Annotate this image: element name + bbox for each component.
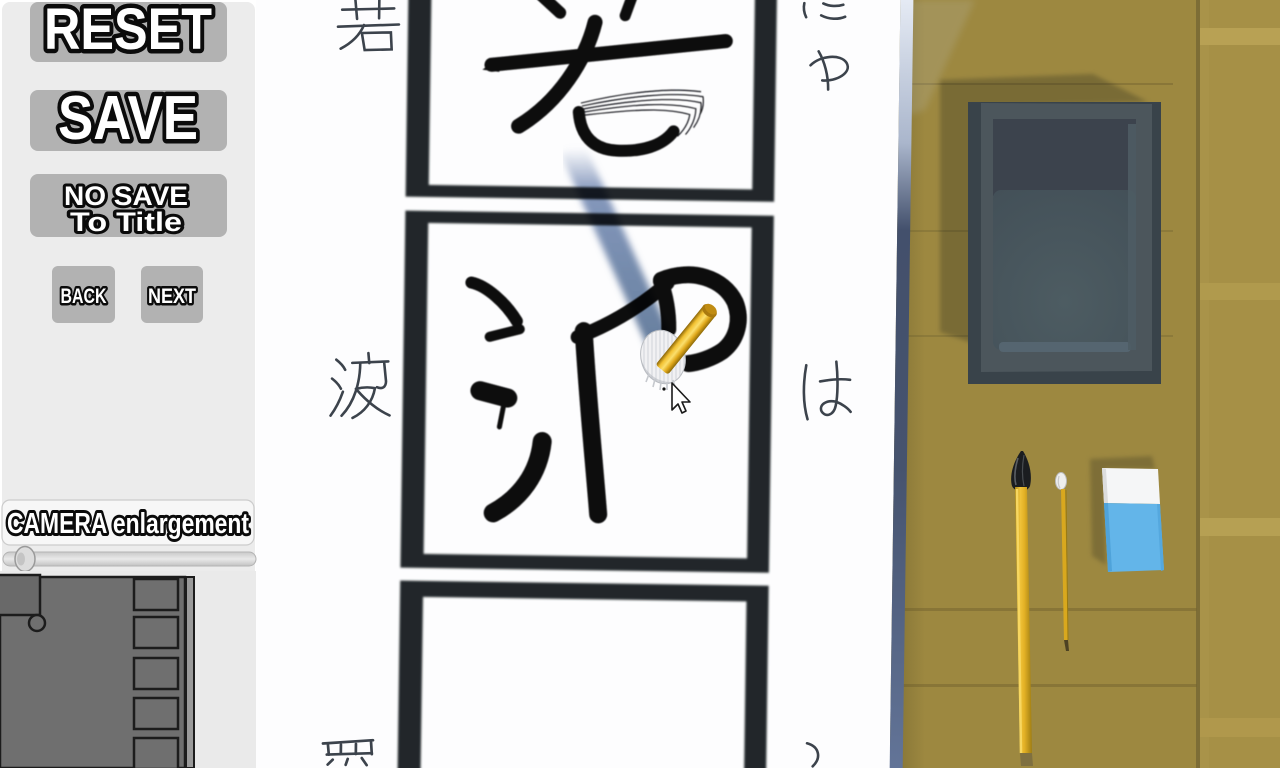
svg-text:BACK: BACK (61, 285, 107, 308)
svg-text:To Title: To Title (70, 207, 182, 237)
svg-text:NEXT: NEXT (148, 285, 196, 308)
svg-text:CAMERA enlargement: CAMERA enlargement (7, 508, 249, 540)
svg-text:SAVE: SAVE (58, 84, 198, 153)
svg-text:RESET: RESET (44, 0, 212, 62)
